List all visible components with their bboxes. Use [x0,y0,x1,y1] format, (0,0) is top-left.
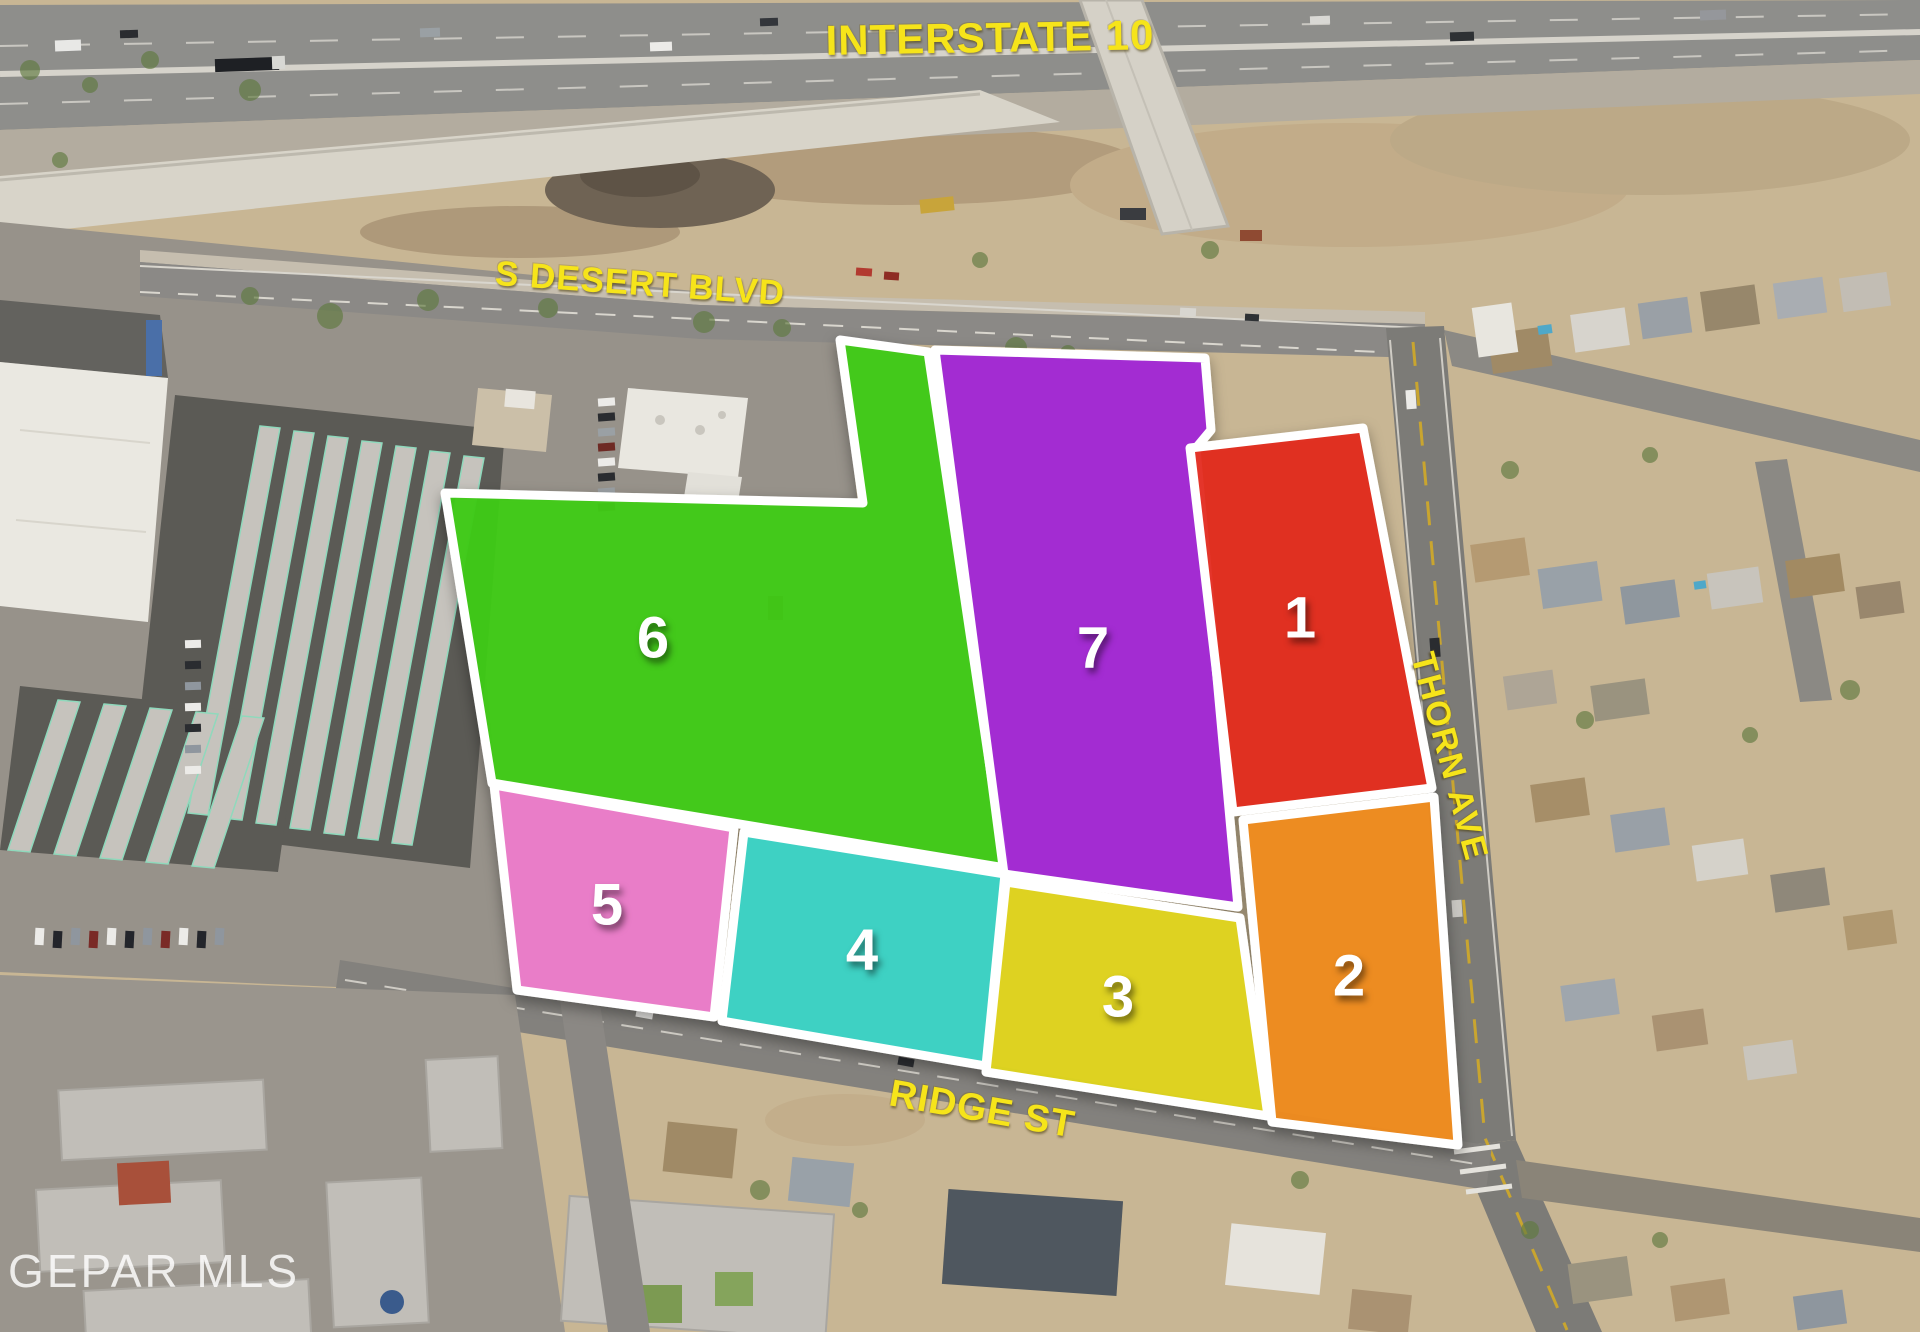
aerial-photo-background [0,0,1920,1332]
parcel-number-3: 3 [1102,964,1134,1031]
parcel-number-1: 1 [1284,585,1316,652]
large-commercial-building [0,300,168,622]
parcel-number-6: 6 [637,605,669,672]
parcel-number-7: 7 [1077,615,1109,682]
street-label-interstate-10: INTERSTATE 10 [825,11,1155,65]
aerial-lot-map: INTERSTATE 10 S DESERT BLVD THORN AVE RI… [0,0,1920,1332]
parcel-number-2: 2 [1333,943,1365,1010]
parcel-number-5: 5 [591,872,623,939]
gepar-mls-watermark: GEPAR MLS [8,1244,300,1298]
parcel-number-4: 4 [846,917,878,984]
